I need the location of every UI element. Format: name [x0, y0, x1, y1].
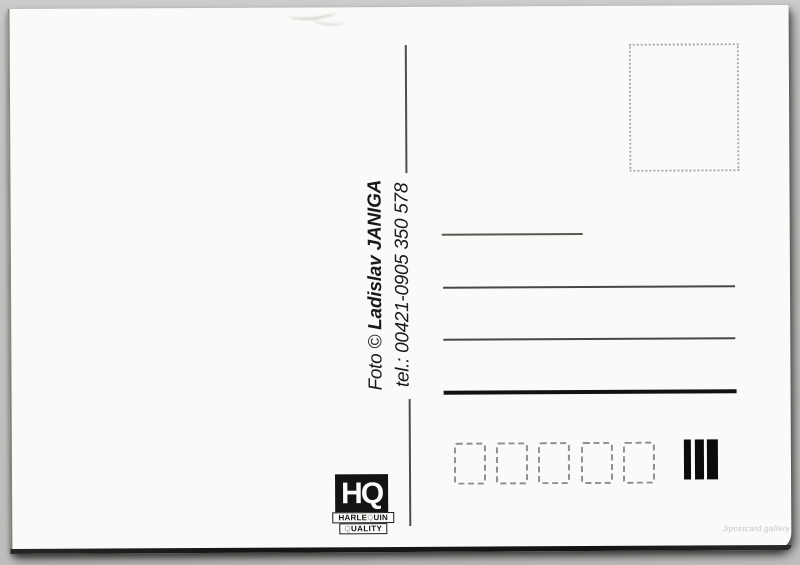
- stamp-box: [629, 43, 740, 172]
- credit-prefix: Foto ©: [365, 335, 386, 391]
- postcode-box-1: [454, 443, 486, 485]
- brand-text: HARLE: [339, 513, 368, 522]
- brand-text: UIN: [374, 513, 388, 522]
- center-divider-bottom: [409, 399, 412, 526]
- card-bottom-edge-shadow: [10, 545, 791, 554]
- quality-text: UALITY: [351, 524, 382, 533]
- hq-logo-brand-strip: HARLEQUIN: [332, 512, 394, 523]
- hq-logo-quality-strip: QUALITY: [339, 523, 387, 534]
- hq-quality-logo: HQ HARLEQUIN QUALITY: [332, 474, 394, 534]
- gallery-watermark: Jlpostcard.gallery: [722, 524, 790, 533]
- postcode-box-3: [538, 442, 570, 484]
- credit-line: Foto © Ladislav JANIGA: [361, 170, 389, 400]
- franking-bar-1: [684, 439, 691, 479]
- postcard-back: Foto © Ladislav JANIGA tel.: 00421-0905 …: [8, 5, 792, 554]
- phone-line: tel.: 00421-0905 350 578: [388, 170, 416, 400]
- center-divider-top: [405, 45, 408, 173]
- franking-bar-2: [695, 439, 704, 479]
- address-line-4-thick: [444, 389, 737, 395]
- postcode-box-5: [623, 442, 655, 484]
- postcode-box-2: [496, 442, 528, 484]
- faint-showthrough-mark: [312, 13, 345, 26]
- address-line-2: [443, 285, 735, 289]
- address-line-3: [443, 337, 735, 341]
- photographer-name: Ladislav JANIGA: [364, 180, 386, 330]
- card-left-edge-shadow: [8, 9, 13, 552]
- hq-logo-initials: HQ: [335, 474, 388, 512]
- postcode-box-4: [581, 442, 613, 484]
- photographer-credit: Foto © Ladislav JANIGA tel.: 00421-0905 …: [361, 170, 418, 400]
- franking-bar-3: [707, 439, 718, 479]
- address-line-1: [442, 233, 583, 236]
